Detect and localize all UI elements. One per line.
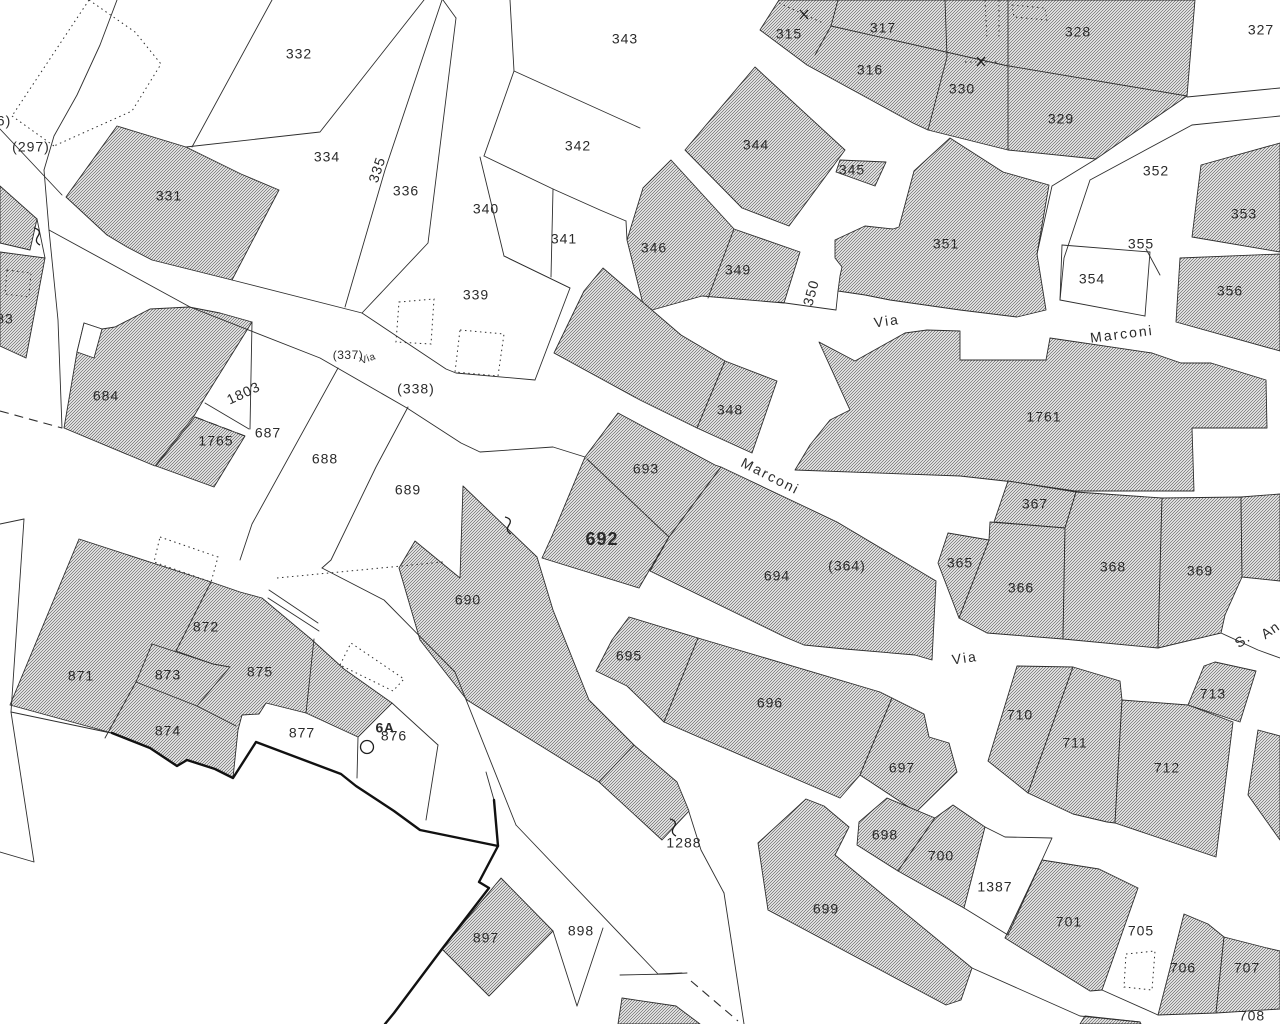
svg-text:327: 327 [1248,22,1274,38]
svg-text:701: 701 [1056,914,1082,930]
svg-text:341: 341 [551,231,577,247]
svg-text:877: 877 [289,725,315,741]
svg-text:343: 343 [612,31,638,47]
svg-text:348: 348 [717,402,743,418]
svg-text:875: 875 [247,664,273,680]
svg-text:699: 699 [813,901,839,917]
svg-text:83: 83 [0,311,14,327]
svg-text:367: 367 [1022,496,1048,512]
svg-text:349: 349 [725,262,751,278]
svg-text:(338): (338) [397,381,435,397]
svg-text:898: 898 [568,923,594,939]
svg-text:356: 356 [1217,283,1243,299]
svg-text:700: 700 [928,848,954,864]
svg-text:695: 695 [616,648,642,664]
svg-text:712: 712 [1154,760,1180,776]
svg-text:354: 354 [1079,271,1105,287]
svg-text:(297): (297) [12,139,50,155]
svg-text:352: 352 [1143,163,1169,179]
svg-text:684: 684 [93,388,119,404]
svg-text:707: 707 [1234,960,1260,976]
svg-text:694: 694 [764,568,790,584]
svg-text:873: 873 [155,667,181,683]
svg-text:334: 334 [314,149,340,165]
svg-text:713: 713 [1200,686,1226,702]
svg-text:708: 708 [1239,1008,1265,1024]
svg-text:351: 351 [933,236,959,252]
svg-text:315: 315 [776,26,802,42]
svg-text:696: 696 [757,695,783,711]
svg-text:6): 6) [0,113,11,129]
svg-text:355: 355 [1128,236,1154,252]
svg-text:692: 692 [585,529,618,549]
svg-text:340: 340 [473,201,499,217]
svg-text:706: 706 [1170,960,1196,976]
svg-text:(337): (337) [333,348,364,362]
svg-text:6A: 6A [376,720,395,736]
svg-text:366: 366 [1008,580,1034,596]
svg-text:342: 342 [565,138,591,154]
svg-text:344: 344 [743,137,769,153]
svg-text:690: 690 [455,592,481,608]
svg-text:365: 365 [947,555,973,571]
svg-text:339: 339 [463,287,489,303]
svg-text:316: 316 [857,62,883,78]
svg-text:328: 328 [1065,24,1091,40]
svg-text:871: 871 [68,668,94,684]
svg-text:687: 687 [255,425,281,441]
svg-text:689: 689 [395,482,421,498]
svg-text:697: 697 [889,760,915,776]
svg-text:(364): (364) [828,558,866,574]
svg-text:345: 345 [839,162,865,178]
svg-text:353: 353 [1231,206,1257,222]
svg-text:330: 330 [949,81,975,97]
svg-text:1765: 1765 [198,433,233,449]
svg-text:368: 368 [1100,559,1126,575]
svg-text:332: 332 [286,46,312,62]
svg-text:897: 897 [473,930,499,946]
svg-text:688: 688 [312,451,338,467]
svg-text:346: 346 [641,240,667,256]
svg-text:710: 710 [1007,707,1033,723]
svg-text:711: 711 [1062,735,1087,751]
svg-text:369: 369 [1187,563,1213,579]
svg-text:1387: 1387 [977,879,1012,895]
svg-text:693: 693 [633,461,659,477]
svg-text:872: 872 [193,619,219,635]
svg-text:317: 317 [870,20,896,36]
svg-text:705: 705 [1128,923,1154,939]
svg-text:331: 331 [156,188,182,204]
svg-text:1288: 1288 [666,835,701,851]
svg-text:698: 698 [872,827,898,843]
svg-text:874: 874 [155,723,181,739]
svg-text:1761: 1761 [1026,409,1061,425]
svg-text:329: 329 [1048,111,1074,127]
svg-text:336: 336 [393,183,419,199]
